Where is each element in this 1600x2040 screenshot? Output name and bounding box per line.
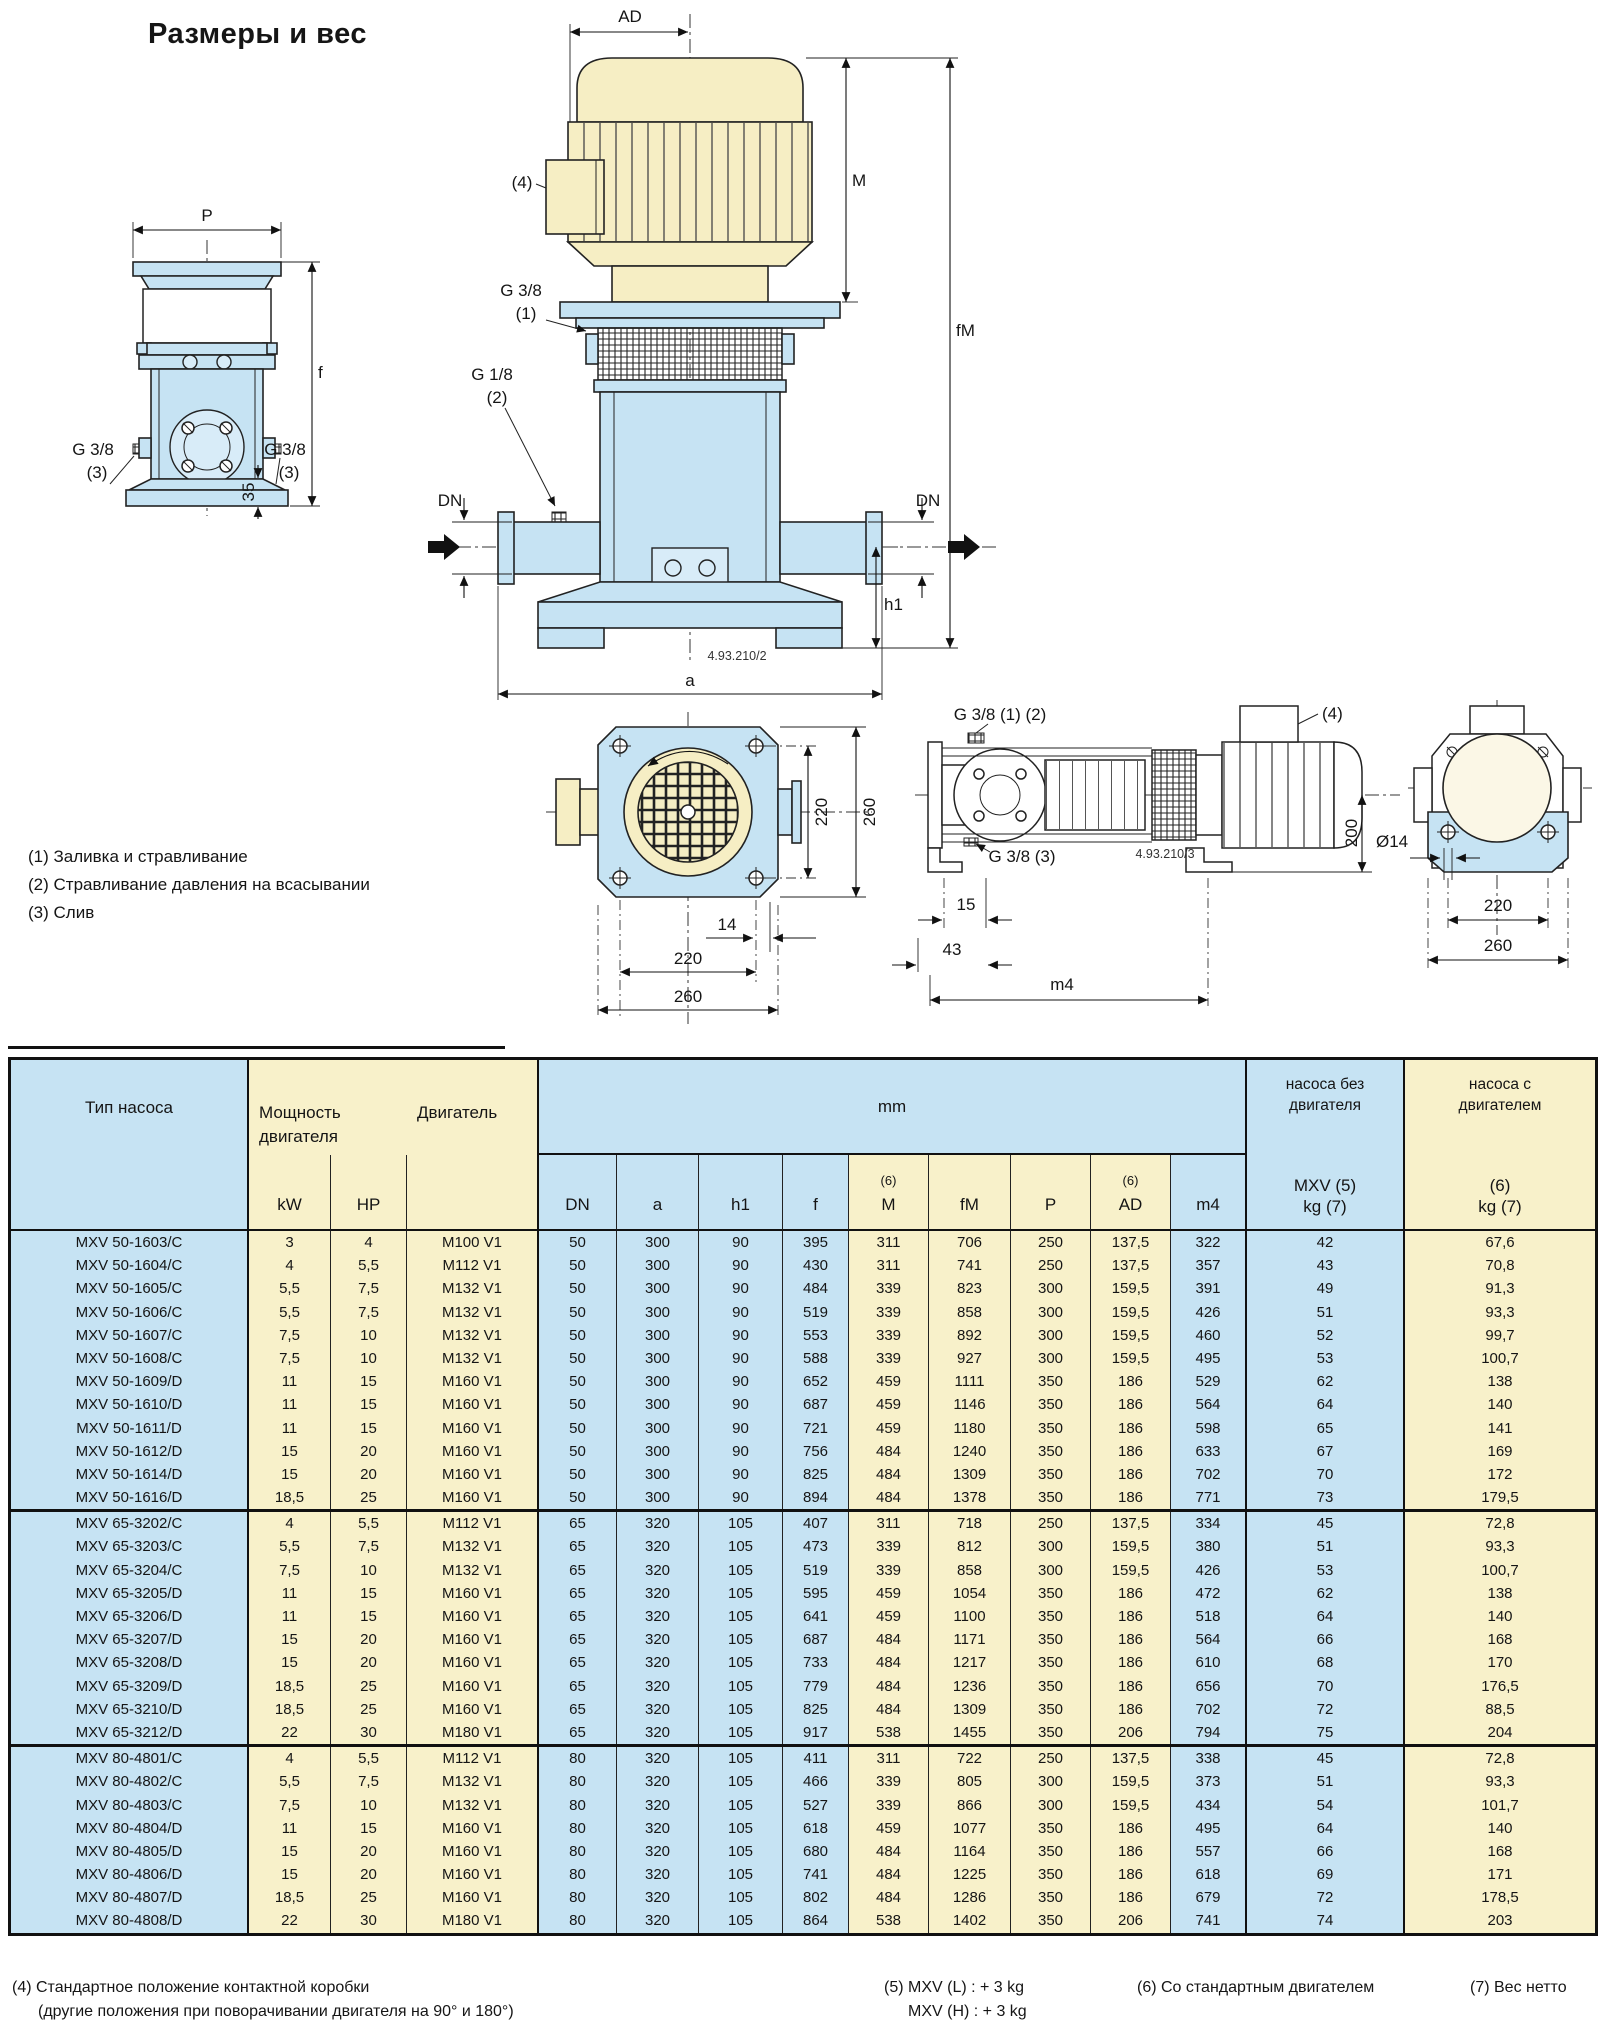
value-cell: 15 [331,1417,407,1440]
value-cell: 15 [249,1863,331,1886]
value-cell: 300 [617,1463,699,1486]
pump-type-cell: MXV 65-3203/C [11,1535,249,1558]
value-cell: 80 [539,1909,617,1932]
port-label-1: (1) [516,304,537,323]
value-cell: 633 [1171,1440,1247,1463]
value-cell: 917 [783,1721,849,1744]
value-cell: 350 [1011,1840,1091,1863]
value-cell: 25 [331,1886,407,1909]
value-cell: 598 [1171,1417,1247,1440]
value-cell: 170 [1405,1651,1595,1674]
value-cell: 105 [699,1651,783,1674]
value-cell: 65 [539,1651,617,1674]
kg-w-line4: kg (7) [1478,1197,1521,1216]
value-cell: 186 [1091,1886,1171,1909]
pump-type-cell: MXV 80-4805/D [11,1840,249,1863]
power-label-line1: Мощность [259,1101,407,1125]
value-cell: 30 [331,1909,407,1932]
value-cell: 350 [1011,1628,1091,1651]
value-cell: 618 [1171,1863,1247,1886]
value-cell: M160 V1 [407,1582,539,1605]
dim-label-220-v: 220 [812,798,831,826]
value-cell: 652 [783,1370,849,1393]
col-header-ad: (6) AD [1091,1155,1171,1231]
value-cell: 339 [849,1324,929,1347]
value-cell: M132 V1 [407,1324,539,1347]
value-cell: 320 [617,1863,699,1886]
value-cell: 15 [249,1440,331,1463]
value-cell: 1225 [929,1863,1011,1886]
value-cell: 49 [1247,1277,1405,1300]
value-cell: 1077 [929,1817,1011,1840]
value-cell: 1309 [929,1463,1011,1486]
value-cell: 459 [849,1582,929,1605]
value-cell: 20 [331,1863,407,1886]
value-cell: 65 [539,1605,617,1628]
value-cell: 300 [617,1417,699,1440]
value-cell: 93,3 [1405,1535,1595,1558]
value-cell: 105 [699,1698,783,1721]
value-cell: 137,5 [1091,1747,1171,1770]
value-cell: 45 [1247,1512,1405,1535]
value-cell: 771 [1171,1486,1247,1509]
port-label-g38-left: G 3/8 [72,440,114,459]
value-cell: 484 [849,1675,929,1698]
value-cell: 702 [1171,1463,1247,1486]
value-cell: 866 [929,1794,1011,1817]
value-cell: 68 [1247,1651,1405,1674]
value-cell: 1111 [929,1370,1011,1393]
value-cell: 459 [849,1605,929,1628]
dimensions-table: Тип насоса Мощность двигателя Двигатель … [8,1057,1598,1936]
value-cell: M180 V1 [407,1721,539,1744]
value-cell: 334 [1171,1512,1247,1535]
value-cell: 45 [1247,1747,1405,1770]
value-cell: 73 [1247,1486,1405,1509]
col-header-kw: kW [249,1155,331,1231]
value-cell: 186 [1091,1628,1171,1651]
value-cell: 25 [331,1486,407,1509]
value-cell: 5,5 [249,1277,331,1300]
value-cell: 88,5 [1405,1698,1595,1721]
value-cell: 11 [249,1605,331,1628]
pump-type-cell: MXV 80-4806/D [11,1863,249,1886]
value-cell: 300 [1011,1770,1091,1793]
value-cell: 15 [331,1393,407,1416]
hp-label: HP [357,1195,381,1215]
value-cell: 339 [849,1301,929,1324]
value-cell: 5,5 [331,1254,407,1277]
pump-type-cell: MXV 80-4803/C [11,1794,249,1817]
value-cell: 564 [1171,1628,1247,1651]
value-cell: 15 [249,1628,331,1651]
value-cell: 80 [539,1886,617,1909]
value-cell: 178,5 [1405,1886,1595,1909]
value-cell: 159,5 [1091,1301,1171,1324]
pump-type-cell: MXV 50-1609/D [11,1370,249,1393]
col-header-mm: mm [539,1060,1247,1155]
col-header-motor: Двигатель [407,1060,539,1155]
pump-type-cell: MXV 65-3212/D [11,1721,249,1744]
dim-label-m4: m4 [1050,975,1074,994]
value-cell: 10 [331,1324,407,1347]
value-cell: 186 [1091,1393,1171,1416]
value-cell: 50 [539,1254,617,1277]
value-cell: 90 [699,1347,783,1370]
value-cell: 5,5 [249,1770,331,1793]
value-cell: 395 [783,1231,849,1254]
value-cell: M132 V1 [407,1794,539,1817]
value-cell: 10 [331,1347,407,1370]
value-cell: 300 [617,1393,699,1416]
value-cell: 320 [617,1770,699,1793]
value-cell: 1236 [929,1675,1011,1698]
value-cell: 311 [849,1254,929,1277]
value-cell: 484 [849,1863,929,1886]
value-cell: M160 V1 [407,1675,539,1698]
value-cell: 186 [1091,1698,1171,1721]
value-cell: M160 V1 [407,1463,539,1486]
value-cell: 527 [783,1794,849,1817]
value-cell: 311 [849,1231,929,1254]
col-header-fm: fM [929,1155,1011,1231]
value-cell: 300 [1011,1324,1091,1347]
value-cell: 186 [1091,1840,1171,1863]
value-cell: 300 [1011,1301,1091,1324]
pump-type-cell: MXV 50-1611/D [11,1417,249,1440]
value-cell: 733 [783,1651,849,1674]
value-cell: 460 [1171,1324,1247,1347]
value-cell: 138 [1405,1370,1595,1393]
value-cell: 756 [783,1440,849,1463]
value-cell: 50 [539,1463,617,1486]
value-cell: M112 V1 [407,1254,539,1277]
dn-col-label: DN [565,1195,590,1215]
value-cell: 168 [1405,1840,1595,1863]
value-cell: 1054 [929,1582,1011,1605]
pump-type-cell: MXV 50-1607/C [11,1324,249,1347]
value-cell: 5,5 [249,1301,331,1324]
value-cell: 11 [249,1417,331,1440]
kg-w-line1: насоса с [1469,1076,1531,1093]
flow-arrow-out [948,534,980,560]
value-cell: 80 [539,1747,617,1770]
value-cell: 812 [929,1535,1011,1558]
value-cell: 11 [249,1393,331,1416]
value-cell: 357 [1171,1254,1247,1277]
value-cell: 186 [1091,1651,1171,1674]
value-cell: 484 [849,1698,929,1721]
value-cell: 176,5 [1405,1675,1595,1698]
value-cell: 459 [849,1393,929,1416]
dim-label-f: f [318,363,323,382]
value-cell: M160 V1 [407,1417,539,1440]
value-cell: 718 [929,1512,1011,1535]
value-cell: 137,5 [1091,1231,1171,1254]
value-cell: 4 [249,1512,331,1535]
pump-type-cell: MXV 65-3202/C [11,1512,249,1535]
port-label-2: (2) [487,388,508,407]
value-cell: 64 [1247,1605,1405,1628]
value-cell: 459 [849,1817,929,1840]
value-cell: 159,5 [1091,1559,1171,1582]
value-cell: 892 [929,1324,1011,1347]
drawing-number-2: 4.93.210/2 [707,649,766,663]
footnote-6: (6) Со стандартным двигателем [1137,1976,1374,2000]
value-cell: 350 [1011,1486,1091,1509]
value-cell: 206 [1091,1721,1171,1744]
value-cell: 20 [331,1463,407,1486]
pump-type-cell: MXV 65-3204/C [11,1559,249,1582]
port-label-g38-12: G 3/8 (1) (2) [954,705,1047,724]
value-cell: M160 V1 [407,1840,539,1863]
kg-w-line2: двигателем [1459,1097,1542,1114]
value-cell: 426 [1171,1301,1247,1324]
value-cell: 18,5 [249,1698,331,1721]
value-cell: 320 [617,1512,699,1535]
value-cell: 484 [849,1463,929,1486]
value-cell: 20 [331,1840,407,1863]
col-header-m4: m4 [1171,1155,1247,1231]
value-cell: 7,5 [331,1770,407,1793]
value-cell: 484 [849,1628,929,1651]
value-cell: 380 [1171,1535,1247,1558]
value-cell: 22 [249,1909,331,1932]
value-cell: M100 V1 [407,1231,539,1254]
value-cell: 50 [539,1277,617,1300]
dim-label-200: 200 [1342,819,1361,847]
value-cell: 10 [331,1794,407,1817]
dim-label-260-r: 260 [1484,936,1512,955]
value-cell: 300 [617,1324,699,1347]
value-cell: 90 [699,1324,783,1347]
value-cell: 320 [617,1605,699,1628]
value-cell: 320 [617,1794,699,1817]
value-cell: 4 [249,1747,331,1770]
value-cell: 320 [617,1886,699,1909]
value-cell: 300 [617,1370,699,1393]
value-cell: 105 [699,1559,783,1582]
value-cell: M132 V1 [407,1535,539,1558]
value-cell: 529 [1171,1370,1247,1393]
value-cell: 538 [849,1721,929,1744]
m4-col-label: m4 [1196,1195,1220,1215]
h1-col-label: h1 [731,1195,750,1215]
value-cell: 186 [1091,1463,1171,1486]
p-col-label: P [1045,1195,1056,1215]
value-cell: M160 V1 [407,1817,539,1840]
flow-arrow-in [428,534,460,560]
value-cell: 300 [617,1301,699,1324]
pump-type-cell: MXV 80-4807/D [11,1886,249,1909]
value-cell: M132 V1 [407,1277,539,1300]
value-cell: 519 [783,1559,849,1582]
value-cell: M160 V1 [407,1370,539,1393]
value-cell: 90 [699,1393,783,1416]
value-cell: 7,5 [249,1559,331,1582]
value-cell: 51 [1247,1301,1405,1324]
value-cell: M112 V1 [407,1747,539,1770]
value-cell: 466 [783,1770,849,1793]
value-cell: 18,5 [249,1675,331,1698]
value-cell: 1171 [929,1628,1011,1651]
value-cell: 105 [699,1512,783,1535]
value-cell: 90 [699,1301,783,1324]
value-cell: M160 V1 [407,1605,539,1628]
value-cell: 64 [1247,1393,1405,1416]
value-cell: 90 [699,1440,783,1463]
dim-label-m: M [852,171,866,190]
col-header-dn: DN [539,1155,617,1231]
value-cell: 50 [539,1486,617,1509]
value-cell: 50 [539,1347,617,1370]
value-cell: 203 [1405,1909,1595,1932]
pump-type-cell: MXV 50-1612/D [11,1440,249,1463]
value-cell: 7,5 [249,1794,331,1817]
terminal-box-label: (4) [512,173,533,192]
dim-label-a: a [685,671,695,690]
value-cell: 320 [617,1559,699,1582]
value-cell: 411 [783,1747,849,1770]
value-cell: 10 [331,1559,407,1582]
horizontal-pump-drawing: G 3/8 (1) (2) (4) G 3/8 (3) 4.93.210/3 2… [892,704,1400,1006]
value-cell: 300 [1011,1559,1091,1582]
value-cell: 484 [783,1277,849,1300]
value-cell: 101,7 [1405,1794,1595,1817]
value-cell: 350 [1011,1605,1091,1628]
value-cell: 50 [539,1370,617,1393]
value-cell: 75 [1247,1721,1405,1744]
value-cell: 15 [331,1582,407,1605]
value-cell: 50 [539,1231,617,1254]
value-cell: 74 [1247,1909,1405,1932]
value-cell: 459 [849,1417,929,1440]
value-cell: 339 [849,1559,929,1582]
value-cell: 679 [1171,1886,1247,1909]
value-cell: 588 [783,1347,849,1370]
pump-type-cell: MXV 50-1616/D [11,1486,249,1509]
legend-note-2: (2) Стравливание давления на всасывании [28,871,370,899]
value-cell: 407 [783,1512,849,1535]
value-cell: 721 [783,1417,849,1440]
value-cell: 4 [331,1231,407,1254]
value-cell: 204 [1405,1721,1595,1744]
value-cell: 858 [929,1301,1011,1324]
legend-note-1: (1) Заливка и стравливание [28,843,370,871]
value-cell: 805 [929,1770,1011,1793]
value-cell: 339 [849,1535,929,1558]
value-cell: 90 [699,1486,783,1509]
value-cell: 350 [1011,1393,1091,1416]
value-cell: 105 [699,1721,783,1744]
value-cell: M160 V1 [407,1886,539,1909]
value-cell: 320 [617,1817,699,1840]
value-cell: 350 [1011,1817,1091,1840]
value-cell: 62 [1247,1370,1405,1393]
dim-label-260-b: 260 [674,987,702,1006]
value-cell: 680 [783,1840,849,1863]
value-cell: 53 [1247,1559,1405,1582]
col-header-kg-with-motor: насоса с двигателем (6) kg (7) [1405,1060,1595,1231]
col-header-p: P [1011,1155,1091,1231]
value-cell: 557 [1171,1840,1247,1863]
value-cell: 5,5 [249,1535,331,1558]
value-cell: 64 [1247,1817,1405,1840]
value-cell: 186 [1091,1582,1171,1605]
dn-label-left: DN [438,491,463,510]
col-header-power: Мощность двигателя [249,1060,407,1155]
value-cell: 159,5 [1091,1347,1171,1370]
value-cell: 702 [1171,1698,1247,1721]
value-cell: 339 [849,1794,929,1817]
value-cell: 51 [1247,1535,1405,1558]
value-cell: 169 [1405,1440,1595,1463]
value-cell: 50 [539,1393,617,1416]
value-cell: 350 [1011,1370,1091,1393]
value-cell: 687 [783,1628,849,1651]
pump-type-cell: MXV 80-4804/D [11,1817,249,1840]
catalog-page: Размеры и вес [0,0,1600,2040]
divider-rule [8,1046,505,1049]
value-cell: 350 [1011,1698,1091,1721]
value-cell: 137,5 [1091,1254,1171,1277]
value-cell: 11 [249,1817,331,1840]
col-header-m: (6) M [849,1155,929,1231]
value-cell: 25 [331,1698,407,1721]
value-cell: 186 [1091,1675,1171,1698]
value-cell: 300 [1011,1277,1091,1300]
value-cell: 706 [929,1231,1011,1254]
value-cell: 300 [1011,1347,1091,1370]
value-cell: 105 [699,1675,783,1698]
value-cell: 65 [539,1675,617,1698]
value-cell: 564 [1171,1393,1247,1416]
value-cell: 300 [617,1486,699,1509]
value-cell: 15 [331,1605,407,1628]
pump-top-view-drawing: 220 260 14 220 260 [546,712,879,1024]
value-cell: 50 [539,1417,617,1440]
value-cell: 311 [849,1512,929,1535]
pump-type-cell: MXV 50-1603/C [11,1231,249,1254]
value-cell: 105 [699,1582,783,1605]
value-cell: 80 [539,1817,617,1840]
value-cell: 159,5 [1091,1277,1171,1300]
pump-type-cell: MXV 50-1606/C [11,1301,249,1324]
value-cell: 140 [1405,1605,1595,1628]
value-cell: M132 V1 [407,1347,539,1370]
value-cell: M160 V1 [407,1393,539,1416]
value-cell: 610 [1171,1651,1247,1674]
value-cell: 69 [1247,1863,1405,1886]
value-cell: 300 [1011,1794,1091,1817]
value-cell: M160 V1 [407,1863,539,1886]
pump-type-cell: MXV 65-3208/D [11,1651,249,1674]
value-cell: 825 [783,1698,849,1721]
value-cell: 72 [1247,1698,1405,1721]
value-cell: 5,5 [331,1512,407,1535]
value-cell: 25 [331,1675,407,1698]
value-cell: M180 V1 [407,1909,539,1932]
value-cell: 3 [249,1231,331,1254]
value-cell: 206 [1091,1909,1171,1932]
value-cell: 350 [1011,1582,1091,1605]
value-cell: 927 [929,1347,1011,1370]
value-cell: 1402 [929,1909,1011,1932]
value-cell: 473 [783,1535,849,1558]
port-label-g18: G 1/8 [471,365,513,384]
value-cell: 1217 [929,1651,1011,1674]
value-cell: 20 [331,1651,407,1674]
